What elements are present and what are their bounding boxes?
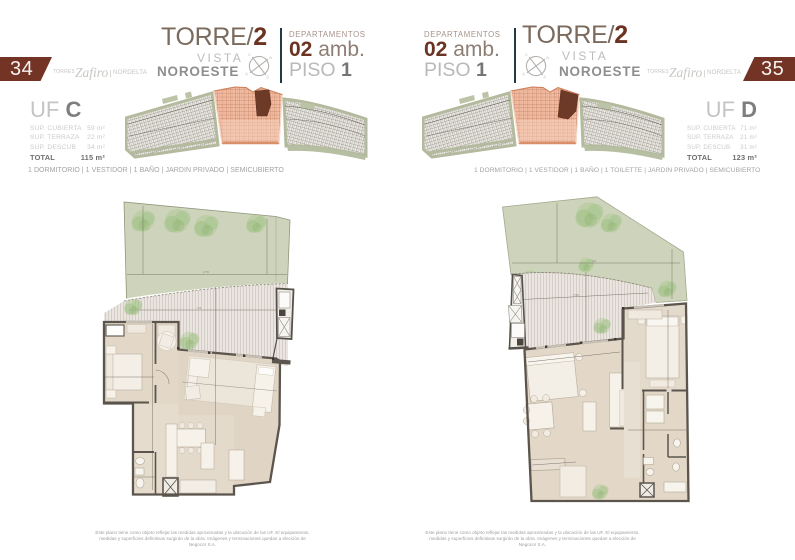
svg-text:4.5: 4.5 xyxy=(197,306,202,310)
svg-text:N: N xyxy=(269,56,273,60)
svg-text:S: S xyxy=(522,72,526,76)
svg-text:2.79: 2.79 xyxy=(203,270,209,274)
svg-text:S: S xyxy=(245,72,249,76)
svg-text:E: E xyxy=(266,75,270,79)
svg-text:O: O xyxy=(248,53,252,57)
svg-text:N: N xyxy=(546,56,550,60)
svg-text:7.55: 7.55 xyxy=(573,293,579,297)
svg-text:E: E xyxy=(543,75,547,79)
svg-text:O: O xyxy=(525,53,529,57)
svg-text:3.5: 3.5 xyxy=(592,259,597,263)
